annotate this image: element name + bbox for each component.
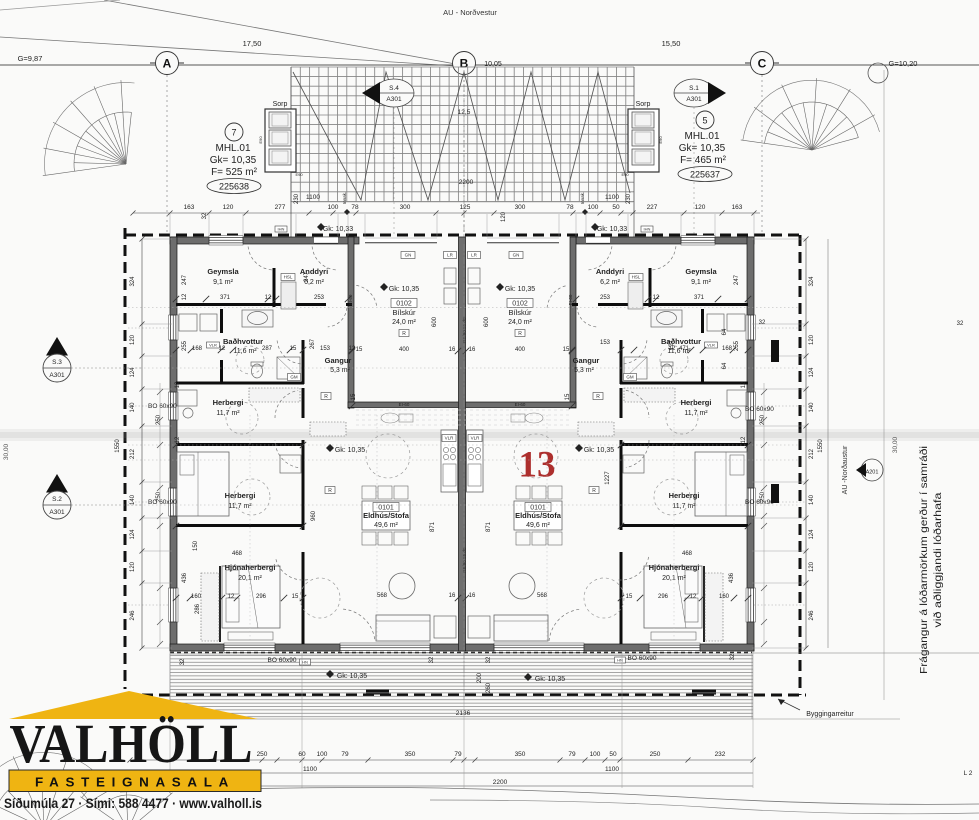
svg-text:232: 232 [715, 751, 726, 758]
svg-text:324: 324 [809, 276, 815, 287]
svg-text:Bílskúr: Bílskúr [509, 308, 532, 317]
svg-text:600: 600 [432, 316, 438, 327]
svg-text:296: 296 [658, 594, 669, 600]
svg-text:160: 160 [719, 594, 730, 600]
svg-text:24,0 m²: 24,0 m² [392, 319, 416, 326]
svg-text:1550: 1550 [818, 439, 824, 453]
svg-text:AU -Norðaustur: AU -Norðaustur [841, 445, 849, 494]
svg-text:1100: 1100 [605, 766, 619, 773]
svg-text:124: 124 [809, 529, 815, 540]
svg-text:Sorp: Sorp [636, 101, 651, 108]
svg-text:R: R [518, 331, 522, 337]
svg-text:LR: LR [471, 253, 478, 258]
svg-text:G=10,20: G=10,20 [889, 59, 918, 68]
svg-text:371: 371 [220, 295, 231, 301]
svg-text:12: 12 [741, 381, 747, 388]
svg-text:960: 960 [311, 510, 317, 521]
svg-text:11,7 m²: 11,7 m² [216, 410, 240, 417]
svg-text:Gk: 10,35: Gk: 10,35 [335, 447, 365, 454]
svg-text:Gk: 10,35: Gk: 10,35 [505, 286, 535, 293]
svg-text:L 2: L 2 [964, 770, 973, 777]
svg-text:168: 168 [722, 346, 733, 352]
svg-text:1227: 1227 [605, 471, 611, 485]
svg-text:R: R [592, 488, 596, 494]
svg-text:140: 140 [809, 402, 815, 413]
svg-text:120: 120 [809, 561, 815, 572]
svg-text:150: 150 [193, 540, 199, 551]
svg-text:Herbergi: Herbergi [669, 491, 700, 500]
svg-text:IHN: IHN [644, 226, 651, 231]
svg-text:255: 255 [734, 340, 740, 351]
svg-text:120: 120 [809, 334, 815, 345]
svg-text:15: 15 [290, 346, 297, 352]
svg-text:871: 871 [486, 521, 492, 532]
svg-text:140: 140 [130, 402, 136, 413]
svg-text:12: 12 [741, 436, 747, 443]
svg-text:G=9,87: G=9,87 [18, 54, 43, 63]
svg-text:16: 16 [449, 347, 456, 353]
svg-text:Síðumúla 27 · Sími: 588 4477 ·: Síðumúla 27 · Sími: 588 4477 · www.valho… [4, 796, 262, 811]
svg-text:246: 246 [809, 610, 815, 621]
svg-text:32: 32 [180, 658, 186, 665]
svg-text:12: 12 [182, 293, 188, 300]
svg-text:11,7 m²: 11,7 m² [684, 410, 708, 417]
svg-text:15: 15 [351, 393, 357, 400]
svg-text:246: 246 [130, 610, 136, 621]
svg-text:15: 15 [565, 393, 571, 400]
svg-text:Gk= 10,35: Gk= 10,35 [679, 143, 726, 154]
svg-text:9,1 m²: 9,1 m² [213, 279, 234, 286]
svg-text:79: 79 [568, 751, 576, 758]
svg-text:120: 120 [223, 204, 234, 211]
svg-text:IHN: IHN [278, 226, 285, 231]
svg-text:32: 32 [730, 653, 736, 660]
svg-text:568: 568 [377, 593, 388, 599]
svg-text:12,5: 12,5 [458, 109, 471, 116]
svg-text:Gk= 10,35: Gk= 10,35 [210, 155, 257, 166]
svg-text:E90: E90 [658, 136, 663, 144]
svg-text:AU - Norðvestur: AU - Norðvestur [443, 8, 497, 17]
svg-text:12: 12 [175, 436, 181, 443]
svg-text:S.1: S.1 [689, 85, 699, 92]
svg-text:R: R [596, 394, 600, 400]
svg-text:A301: A301 [49, 509, 65, 516]
svg-text:EI-60: EI-60 [348, 294, 353, 305]
svg-text:120: 120 [695, 204, 706, 211]
svg-text:Eldhús/Stofa: Eldhús/Stofa [515, 511, 562, 520]
svg-text:12: 12 [265, 295, 272, 301]
svg-text:BO 60x90: BO 60x90 [148, 403, 177, 410]
svg-text:468: 468 [682, 551, 693, 557]
svg-text:11,7 m²: 11,7 m² [672, 503, 696, 510]
svg-text:5: 5 [702, 116, 707, 126]
svg-text:24,0 m²: 24,0 m² [508, 319, 532, 326]
svg-text:Gk: 10,35: Gk: 10,35 [535, 676, 565, 683]
svg-text:A301: A301 [386, 96, 402, 103]
svg-text:100: 100 [328, 204, 339, 211]
svg-text:250: 250 [760, 414, 766, 425]
svg-text:HN: HN [302, 659, 308, 664]
svg-text:32: 32 [202, 212, 208, 219]
svg-text:GM: GM [290, 375, 298, 380]
svg-text:Eldhús/Stofa: Eldhús/Stofa [363, 511, 410, 520]
svg-text:350: 350 [515, 751, 526, 758]
svg-text:11,6 m²: 11,6 m² [233, 348, 257, 355]
svg-text:400: 400 [399, 347, 410, 353]
svg-text:250: 250 [257, 751, 268, 758]
svg-text:1100: 1100 [306, 194, 320, 201]
svg-text:350: 350 [405, 751, 416, 758]
svg-text:15: 15 [356, 347, 363, 353]
svg-text:GN: GN [405, 253, 412, 258]
svg-text:100: 100 [590, 751, 601, 758]
svg-text:300: 300 [515, 204, 526, 211]
svg-text:HSL: HSL [632, 275, 641, 280]
svg-text:32: 32 [486, 656, 492, 663]
svg-text:230: 230 [626, 193, 632, 204]
svg-text:Gk: 10,33: Gk: 10,33 [597, 226, 627, 233]
svg-text:212: 212 [130, 448, 136, 459]
svg-text:100: 100 [317, 751, 328, 758]
svg-text:324: 324 [130, 276, 136, 287]
svg-text:286: 286 [195, 603, 201, 614]
svg-text:1550: 1550 [115, 439, 121, 453]
svg-text:17,50: 17,50 [243, 39, 262, 48]
svg-text:49,6 m²: 49,6 m² [374, 522, 398, 529]
svg-text:S.2: S.2 [52, 496, 62, 503]
svg-text:EI-60: EI-60 [568, 294, 573, 305]
svg-text:15,50: 15,50 [662, 39, 681, 48]
svg-text:R: R [328, 488, 332, 494]
svg-text:VLR: VLR [471, 436, 481, 441]
svg-text:Innak.: Innak. [580, 192, 585, 204]
svg-text:1100: 1100 [605, 194, 619, 201]
svg-text:120: 120 [501, 211, 507, 222]
svg-text:225637: 225637 [690, 170, 720, 180]
svg-text:163: 163 [732, 204, 743, 211]
svg-text:VALHÖLL: VALHÖLL [10, 713, 253, 774]
svg-text:253: 253 [314, 295, 325, 301]
svg-text:227: 227 [647, 204, 658, 211]
svg-text:C: C [758, 57, 767, 71]
svg-text:S.3: S.3 [52, 359, 62, 366]
svg-text:12: 12 [690, 594, 697, 600]
svg-text:371: 371 [694, 295, 705, 301]
svg-text:A: A [163, 57, 172, 71]
svg-text:Bílskúr: Bílskúr [393, 308, 416, 317]
svg-text:13: 13 [519, 445, 556, 486]
svg-text:A301: A301 [686, 96, 702, 103]
svg-text:R: R [402, 331, 406, 337]
svg-text:LR: LR [447, 253, 454, 258]
svg-text:Geymsla: Geymsla [685, 267, 717, 276]
svg-text:A301: A301 [49, 372, 65, 379]
svg-text:20,1 m²: 20,1 m² [662, 575, 686, 582]
svg-text:32: 32 [957, 321, 964, 327]
svg-text:127: 127 [669, 339, 675, 350]
svg-text:50: 50 [612, 204, 620, 211]
svg-text:100: 100 [588, 204, 599, 211]
svg-text:30,00: 30,00 [3, 443, 10, 460]
svg-text:VLR: VLR [445, 436, 455, 441]
svg-text:16: 16 [469, 593, 476, 599]
svg-text:Gangur: Gangur [573, 356, 600, 365]
svg-text:64: 64 [722, 362, 728, 369]
svg-text:EI-60: EI-60 [399, 402, 410, 407]
svg-text:253: 253 [600, 295, 611, 301]
svg-text:1100: 1100 [303, 766, 317, 773]
svg-text:20,1 m²: 20,1 m² [238, 575, 262, 582]
svg-text:163: 163 [184, 204, 195, 211]
svg-text:120: 120 [130, 561, 136, 572]
svg-text:GN: GN [513, 253, 520, 258]
svg-text:BO 60x90: BO 60x90 [268, 657, 297, 664]
svg-text:124: 124 [809, 367, 815, 378]
svg-text:HSL: HSL [284, 275, 293, 280]
svg-text:267: 267 [310, 338, 316, 349]
svg-text:E90: E90 [621, 172, 629, 177]
svg-text:250: 250 [156, 414, 162, 425]
svg-text:153: 153 [600, 340, 611, 346]
svg-text:50: 50 [609, 751, 617, 758]
svg-text:R: R [324, 394, 328, 400]
svg-text:við aðliggjandi lóðarhafa: við aðliggjandi lóðarhafa [932, 492, 944, 627]
svg-text:6,2 m²: 6,2 m² [600, 279, 621, 286]
svg-text:BO 60x90: BO 60x90 [628, 655, 657, 662]
svg-text:124: 124 [130, 529, 136, 540]
svg-text:Herbergi: Herbergi [681, 398, 712, 407]
svg-text:125: 125 [460, 204, 471, 211]
svg-text:15: 15 [563, 347, 570, 353]
svg-text:E90: E90 [295, 172, 303, 177]
svg-text:2136: 2136 [456, 710, 471, 717]
svg-text:E90: E90 [258, 136, 263, 144]
svg-text:436: 436 [182, 572, 188, 583]
svg-text:568: 568 [537, 593, 548, 599]
svg-text:78: 78 [566, 204, 574, 211]
svg-text:2200: 2200 [459, 179, 474, 186]
svg-text:153: 153 [320, 346, 331, 352]
svg-text:140: 140 [130, 494, 136, 505]
svg-text:124: 124 [130, 367, 136, 378]
svg-text:64: 64 [722, 328, 728, 335]
svg-text:11,7 m²: 11,7 m² [228, 503, 252, 510]
svg-text:EI-60: EI-60 [515, 402, 526, 407]
svg-text:2200: 2200 [493, 779, 508, 786]
svg-text:12: 12 [228, 594, 235, 600]
svg-text:MHL.01: MHL.01 [684, 131, 719, 142]
svg-text:Gk: 10,35: Gk: 10,35 [337, 673, 367, 680]
svg-text:VLR: VLR [209, 342, 217, 347]
svg-text:120: 120 [130, 334, 136, 345]
svg-text:9,1 m²: 9,1 m² [691, 279, 712, 286]
svg-text:436: 436 [729, 572, 735, 583]
svg-text:Geymsla: Geymsla [207, 267, 239, 276]
svg-text:296: 296 [256, 594, 267, 600]
svg-text:160: 160 [191, 594, 202, 600]
svg-text:32: 32 [429, 656, 435, 663]
svg-text:FASTEIGNASALA: FASTEIGNASALA [35, 775, 235, 790]
svg-text:A201: A201 [866, 470, 879, 476]
svg-text:16: 16 [449, 593, 456, 599]
svg-text:Baðhvottur: Baðhvottur [223, 337, 263, 346]
svg-text:12: 12 [653, 295, 660, 301]
svg-text:247: 247 [182, 274, 188, 285]
svg-text:F= 525 m²: F= 525 m² [211, 167, 258, 178]
svg-text:400: 400 [515, 347, 526, 353]
svg-text:871: 871 [430, 521, 436, 532]
svg-text:MHL.01: MHL.01 [215, 143, 250, 154]
svg-text:RE/90 55 dB: RE/90 55 dB [462, 317, 467, 343]
svg-text:Byggingarreitur: Byggingarreitur [806, 711, 854, 718]
svg-text:F= 465 m²: F= 465 m² [680, 155, 727, 166]
svg-text:Sorp: Sorp [273, 101, 288, 108]
svg-text:12: 12 [175, 381, 181, 388]
svg-text:30,00: 30,00 [892, 436, 899, 453]
svg-text:225638: 225638 [219, 182, 249, 192]
svg-text:0102: 0102 [396, 301, 412, 308]
svg-text:79: 79 [341, 751, 349, 758]
svg-text:250: 250 [650, 751, 661, 758]
svg-text:Gk: 10,35: Gk: 10,35 [389, 286, 419, 293]
svg-text:VLR: VLR [707, 342, 715, 347]
svg-text:247: 247 [304, 271, 310, 282]
svg-text:200: 200 [477, 672, 483, 683]
svg-text:Anddyri: Anddyri [596, 267, 624, 276]
svg-text:15: 15 [626, 594, 633, 600]
svg-text:255: 255 [182, 340, 188, 351]
svg-text:260: 260 [486, 682, 492, 693]
svg-text:471: 471 [679, 346, 690, 352]
svg-text:79: 79 [454, 751, 462, 758]
svg-text:Gangur: Gangur [325, 356, 352, 365]
svg-text:Gk: 10,35: Gk: 10,35 [584, 447, 614, 454]
svg-text:Herbergi: Herbergi [213, 398, 244, 407]
svg-text:600: 600 [484, 316, 490, 327]
svg-text:BO 60x90: BO 60x90 [745, 406, 774, 413]
svg-text:212: 212 [809, 448, 815, 459]
svg-text:0102: 0102 [512, 301, 528, 308]
svg-text:287: 287 [262, 346, 273, 352]
svg-text:Herbergi: Herbergi [225, 491, 256, 500]
svg-text:140: 140 [809, 494, 815, 505]
svg-text:247: 247 [734, 274, 740, 285]
svg-text:12: 12 [219, 346, 226, 352]
svg-text:Innak.: Innak. [342, 192, 347, 204]
svg-text:168: 168 [192, 346, 203, 352]
svg-text:32: 32 [759, 320, 766, 326]
svg-text:GM: GM [626, 375, 634, 380]
svg-text:300: 300 [400, 204, 411, 211]
svg-text:Baðhvottur: Baðhvottur [661, 337, 701, 346]
svg-text:7: 7 [231, 128, 236, 138]
svg-text:15: 15 [292, 594, 299, 600]
svg-text:230: 230 [294, 193, 300, 204]
svg-text:277: 277 [275, 204, 286, 211]
svg-text:78: 78 [351, 204, 359, 211]
svg-text:Frágangur á lóðarmörkum gerður: Frágangur á lóðarmörkum gerður í samráði [918, 446, 930, 674]
svg-text:16: 16 [469, 347, 476, 353]
svg-text:S.4: S.4 [389, 85, 399, 92]
svg-text:468: 468 [232, 551, 243, 557]
svg-text:RE/90 55 dB: RE/90 55 dB [462, 547, 467, 573]
